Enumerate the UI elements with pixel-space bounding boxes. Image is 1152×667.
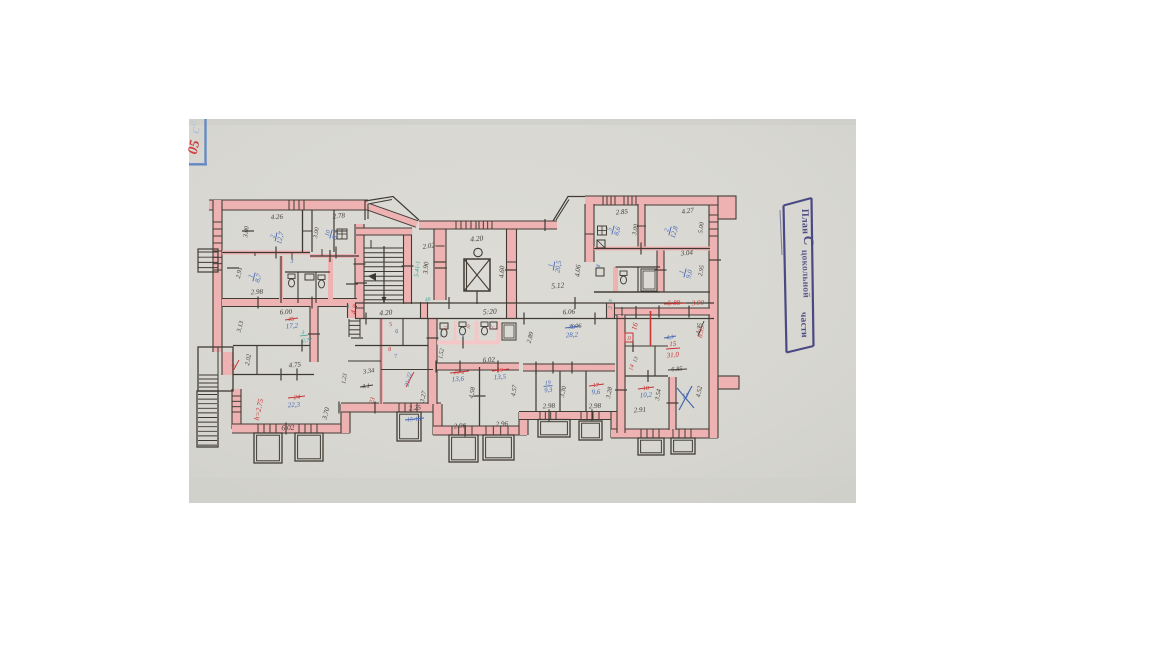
svg-text:31,0: 31,0 (665, 350, 679, 359)
svg-text:3: 3 (290, 259, 294, 265)
svg-text:4: 4 (347, 303, 350, 310)
svg-text:4.60: 4.60 (498, 265, 507, 278)
svg-text:2.96: 2.96 (496, 420, 509, 429)
svg-text:6.02: 6.02 (281, 423, 295, 433)
svg-text:18: 18 (643, 386, 649, 392)
svg-text:С: С (800, 236, 815, 247)
svg-text:5-41-1: 5-41-1 (413, 261, 421, 278)
svg-text:20-а: 20-а (453, 370, 464, 377)
svg-text:2.98: 2.98 (589, 402, 602, 411)
svg-text:4.75: 4.75 (288, 360, 301, 369)
svg-text:6.02: 6.02 (482, 355, 495, 364)
svg-text:5.12: 5.12 (551, 280, 565, 290)
svg-text:19: 19 (497, 368, 503, 374)
svg-text:2.98: 2.98 (543, 402, 556, 411)
svg-text:2.91: 2.91 (634, 406, 647, 415)
svg-text:4.26: 4.26 (270, 213, 283, 222)
svg-text:3.90: 3.90 (691, 299, 705, 308)
svg-text:11: 11 (443, 325, 449, 330)
svg-text:2.96: 2.96 (454, 422, 467, 431)
svg-text:6.06: 6.06 (563, 308, 576, 317)
svg-text:2.25: 2.25 (408, 403, 421, 412)
svg-text:П: П (626, 337, 631, 342)
svg-text:План: План (799, 209, 811, 235)
svg-text:28,2: 28,2 (566, 331, 579, 340)
svg-text:3.04: 3.04 (679, 248, 693, 257)
svg-text:6.00: 6.00 (280, 308, 293, 317)
svg-text:цокольной: цокольной (799, 250, 812, 299)
svg-text:5:20: 5:20 (483, 307, 498, 317)
svg-text:2.85: 2.85 (615, 207, 628, 216)
svg-text:4.20: 4.20 (379, 308, 393, 318)
svg-text:2,77: 2,77 (302, 338, 312, 345)
svg-text:3.90: 3.90 (421, 261, 430, 275)
svg-text:4.06: 4.06 (573, 264, 582, 277)
svg-text:22,3: 22,3 (287, 401, 300, 410)
svg-text:части: части (798, 312, 809, 339)
svg-text:2.78: 2.78 (332, 211, 346, 220)
svg-text:4.20: 4.20 (470, 233, 484, 243)
svg-text:2.98: 2.98 (251, 288, 264, 297)
svg-text:9,3: 9,3 (544, 387, 553, 395)
svg-text:15: 15 (669, 340, 677, 349)
